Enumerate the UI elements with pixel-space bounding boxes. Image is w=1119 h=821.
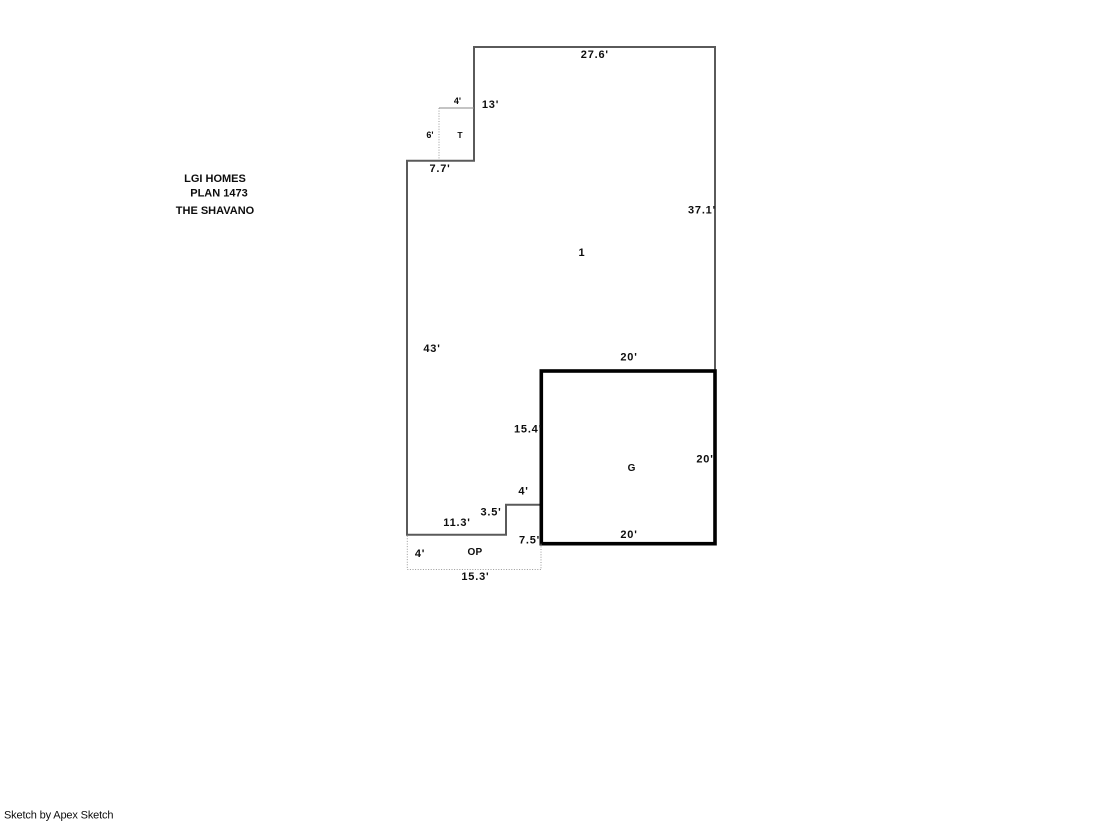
- svg-text:27.6': 27.6': [581, 49, 609, 61]
- svg-text:15.4': 15.4': [514, 423, 542, 435]
- svg-text:20': 20': [620, 529, 637, 541]
- svg-text:43': 43': [423, 343, 440, 355]
- svg-text:G: G: [628, 463, 636, 474]
- svg-text:THE SHAVANO: THE SHAVANO: [176, 205, 255, 217]
- svg-text:7.5': 7.5': [519, 534, 540, 546]
- svg-text:OP: OP: [467, 547, 482, 558]
- svg-text:11.3': 11.3': [443, 517, 470, 529]
- svg-text:6': 6': [426, 130, 433, 140]
- svg-text:3.5': 3.5': [480, 507, 501, 519]
- svg-text:LGI HOMES: LGI HOMES: [184, 173, 246, 185]
- svg-text:20': 20': [620, 351, 637, 363]
- svg-text:20': 20': [696, 453, 713, 465]
- svg-text:4': 4': [518, 486, 528, 498]
- svg-text:T: T: [457, 130, 463, 140]
- svg-text:13': 13': [482, 99, 499, 111]
- svg-text:15.3': 15.3': [461, 571, 489, 583]
- svg-text:1: 1: [579, 247, 586, 259]
- svg-text:4': 4': [415, 548, 425, 560]
- svg-text:37.1': 37.1': [688, 205, 716, 217]
- svg-text:4': 4': [454, 96, 461, 106]
- svg-text:Sketch by Apex Sketch: Sketch by Apex Sketch: [4, 810, 113, 821]
- svg-text:7.7': 7.7': [429, 163, 450, 175]
- svg-text:PLAN 1473: PLAN 1473: [190, 188, 247, 200]
